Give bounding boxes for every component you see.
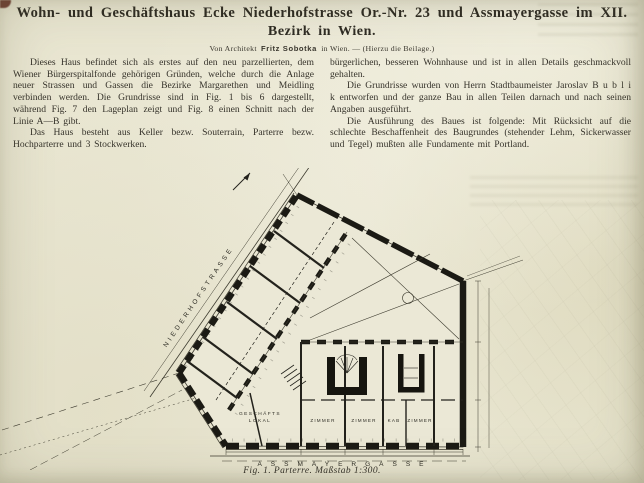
article-header: Wohn- und Geschäftshaus Ecke Niederhofst… [0, 5, 644, 53]
room-label-kab: KAB [388, 418, 401, 423]
byline: Von Architekt Fritz Sobotka in Wien. — (… [0, 44, 644, 53]
building-outline [179, 195, 463, 447]
room-label-zimmer: ZIMMER [407, 418, 432, 423]
room-label-zimmer: ZIMMER [351, 418, 376, 423]
paragraph: Das Haus besteht aus Keller bezw. Souter… [13, 127, 314, 150]
title-line-1: Wohn- und Geschäftshaus Ecke Niederhofst… [0, 5, 644, 22]
room-label-shop-line1: GESCHÄFTS [239, 410, 281, 417]
paragraph: Die Grundrisse wurden von Herrn Stadtbau… [330, 80, 631, 115]
figure-1-floor-plan: NIEDERHOFSTRASSE ASSMAYERGASSE GESCHÄFTS… [0, 168, 644, 483]
column-left: Dieses Haus befindet sich als erstes auf… [13, 57, 314, 151]
floor-plan-drawing: NIEDERHOFSTRASSE ASSMAYERGASSE GESCHÄFTS… [0, 168, 644, 470]
north-arrow-icon [233, 173, 250, 190]
paragraph: bürgerlichen, besseren Wohnhause und ist… [330, 57, 631, 80]
paragraph: Dieses Haus befindet sich als erstes auf… [13, 57, 314, 127]
paragraph: Die Ausführung des Baues ist folgende: M… [330, 116, 631, 151]
body-text-columns: Dieses Haus befindet sich als erstes auf… [0, 57, 644, 151]
column-right: bürgerlichen, besseren Wohnhause und ist… [330, 57, 631, 151]
byline-suffix: in Wien. — (Hierzu die Beilage.) [321, 44, 434, 53]
byline-author: Fritz Sobotka [261, 44, 317, 53]
title-line-2: Bezirk in Wien. [0, 24, 644, 40]
room-label-shop-line2: LOKAL [249, 418, 271, 424]
byline-prefix: Von Architekt [210, 44, 257, 53]
room-label-zimmer: ZIMMER [310, 418, 335, 423]
scanned-journal-page: Wohn- und Geschäftshaus Ecke Niederhofst… [0, 0, 644, 483]
article-title: Wohn- und Geschäftshaus Ecke Niederhofst… [0, 5, 644, 40]
figure-caption: Fig. 1. Parterre. Maßstab 1:300. [0, 466, 624, 476]
